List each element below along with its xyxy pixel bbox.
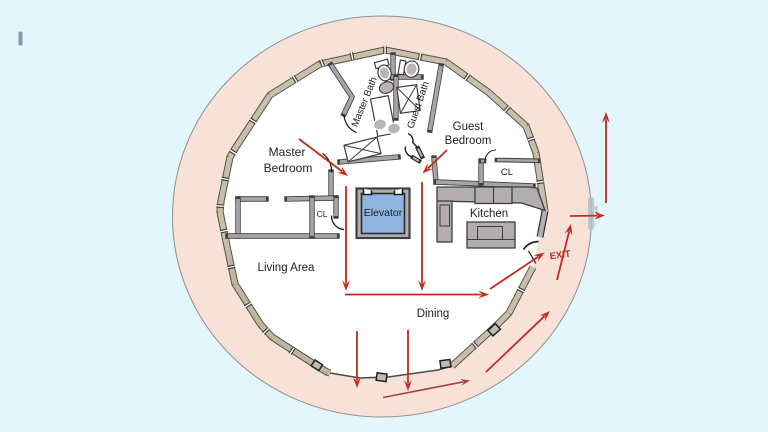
svg-text:Living Area: Living Area <box>258 262 316 274</box>
svg-text:CL: CL <box>317 209 328 219</box>
svg-text:Bedroom: Bedroom <box>264 161 313 175</box>
svg-text:Master: Master <box>269 145 306 159</box>
svg-text:Guest: Guest <box>453 121 484 133</box>
svg-text:Bedroom: Bedroom <box>445 135 492 147</box>
svg-text:Kitchen: Kitchen <box>470 208 508 220</box>
svg-text:Dining: Dining <box>417 308 450 320</box>
svg-text:CL: CL <box>501 167 513 178</box>
svg-text:Elevator: Elevator <box>364 207 403 219</box>
